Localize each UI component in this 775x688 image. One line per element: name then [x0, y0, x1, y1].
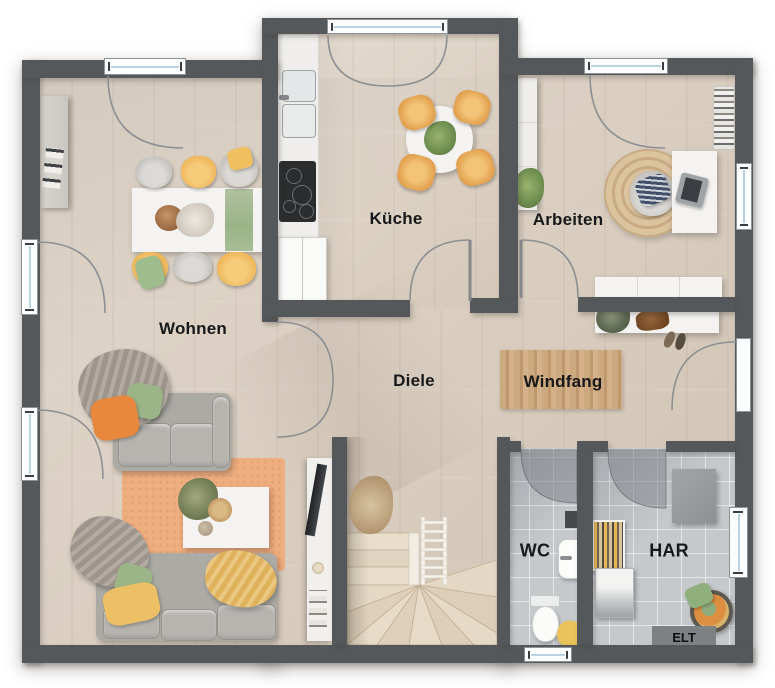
door-arc-kitchen-french-right [388, 35, 447, 86]
room-label-har: HAR [649, 541, 689, 562]
door-arc-kitchen-french-left [328, 35, 388, 86]
door-arc-left-upper [37, 242, 105, 313]
door-arc-arbeiten [521, 240, 578, 298]
room-label-arbeiten: Arbeiten [533, 210, 604, 230]
door-arc-entry [672, 342, 736, 410]
room-label-windfang: Windfang [524, 372, 603, 392]
door-arc-wohnen-terrace [108, 76, 183, 148]
room-label-kueche: Küche [370, 209, 423, 229]
room-label-wc: WC [520, 541, 550, 562]
door-swing-overlay [0, 0, 775, 688]
door-arc-double-top [277, 322, 333, 380]
room-label-diele: Diele [393, 371, 435, 391]
door-arc-kitchen [410, 240, 470, 301]
door-arc-double-bottom [277, 380, 333, 437]
door-swing-wc [521, 450, 577, 503]
floor-plan: ELT [0, 0, 775, 688]
room-label-wohnen: Wohnen [159, 319, 227, 339]
door-swing-har [608, 450, 666, 508]
door-arc-arbeiten-terrace [590, 75, 665, 148]
door-arc-left-lower [37, 410, 103, 479]
